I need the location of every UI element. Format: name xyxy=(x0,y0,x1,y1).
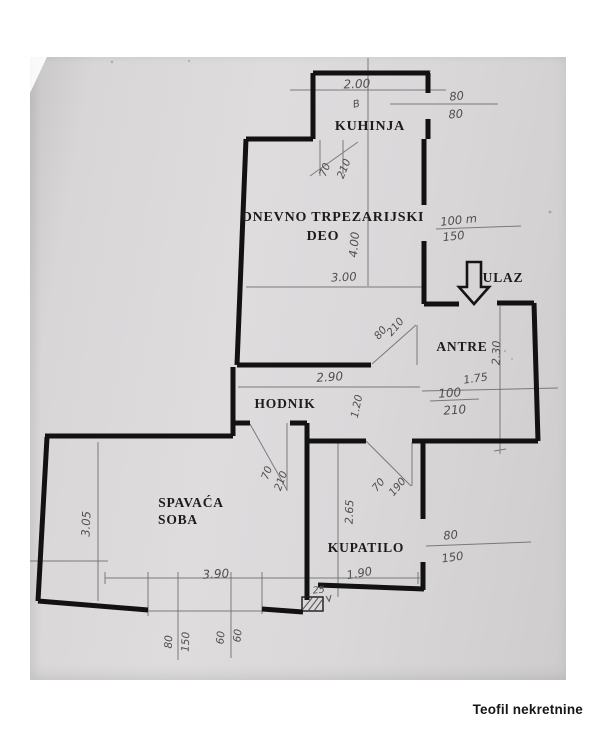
dimension-label: 80 xyxy=(449,88,465,103)
dimension-label: 3.05 xyxy=(79,511,94,537)
dimension-label: 2.90 xyxy=(316,369,344,385)
dimension-label: 1.75 xyxy=(462,370,488,386)
dimension-label: 80 xyxy=(163,635,175,649)
dimension-label: 70 xyxy=(370,476,388,494)
room-label-antre: ANTRE xyxy=(436,339,487,354)
room-label-hodnik: HODNIK xyxy=(254,396,315,411)
dimension-label: 1.90 xyxy=(345,564,373,582)
dimension-label: 4.00 xyxy=(346,231,362,258)
dimension-label: 150 xyxy=(441,549,465,566)
room-label-spavaca-2: SOBA xyxy=(158,512,198,527)
dimension-label: 1.20 xyxy=(349,393,366,419)
floor-plan-svg: KUHINJA DNEVNO TRPEZARIJSKI DEO ULAZ ANT… xyxy=(0,0,600,736)
hatch-side-mark xyxy=(326,595,331,602)
dimension-label: 2.00 xyxy=(343,77,371,92)
dimension-label: 2.65 xyxy=(343,499,357,524)
dimension-label: 80 xyxy=(443,527,459,542)
watermark-label: Teofil nekretnine xyxy=(473,702,583,717)
room-label-dnevno-1: DNEVNO TRPEZARIJSKI xyxy=(242,210,425,225)
dimension-label: 3.00 xyxy=(331,269,357,284)
dimension-label: 210 xyxy=(272,469,290,492)
dimension-label: 25 xyxy=(312,584,325,596)
dimension-label: 210 xyxy=(443,402,467,418)
room-label-kuhinja: KUHINJA xyxy=(335,119,405,134)
room-label-spavaca-1: SPAVAĆA xyxy=(158,495,224,510)
dimension-label: 60 xyxy=(214,630,227,645)
dimension-label: 3.90 xyxy=(202,566,230,581)
dimension-label: 190 xyxy=(387,475,409,498)
dimension-label: 80 xyxy=(448,107,464,122)
dimension-label: 2.30 xyxy=(490,340,504,365)
dimension-line-bathroom-window xyxy=(426,542,531,546)
dimension-label: 60 xyxy=(231,628,244,643)
dimension-label: 100 xyxy=(438,385,462,401)
dimension-label: B xyxy=(352,98,361,110)
room-label-dnevno-2: DEO xyxy=(307,229,340,244)
dimension-label: 150 xyxy=(442,228,465,244)
dimension-label: 100 m xyxy=(440,211,478,229)
bathroom-door-swing xyxy=(366,441,412,486)
room-label-ulaz: ULAZ xyxy=(483,270,524,285)
dimension-label: 210 xyxy=(335,157,354,180)
dimension-label: 210 xyxy=(385,315,407,338)
kitchen-door-swing xyxy=(310,140,358,176)
dimension-label: 150 xyxy=(180,631,193,652)
scanned-floor-plan: KUHINJA DNEVNO TRPEZARIJSKI DEO ULAZ ANT… xyxy=(0,0,600,736)
dimension-line-antre-height xyxy=(494,306,506,454)
dimension-label: 70 xyxy=(259,464,275,481)
room-label-kupatilo: KUPATILO xyxy=(328,540,404,555)
